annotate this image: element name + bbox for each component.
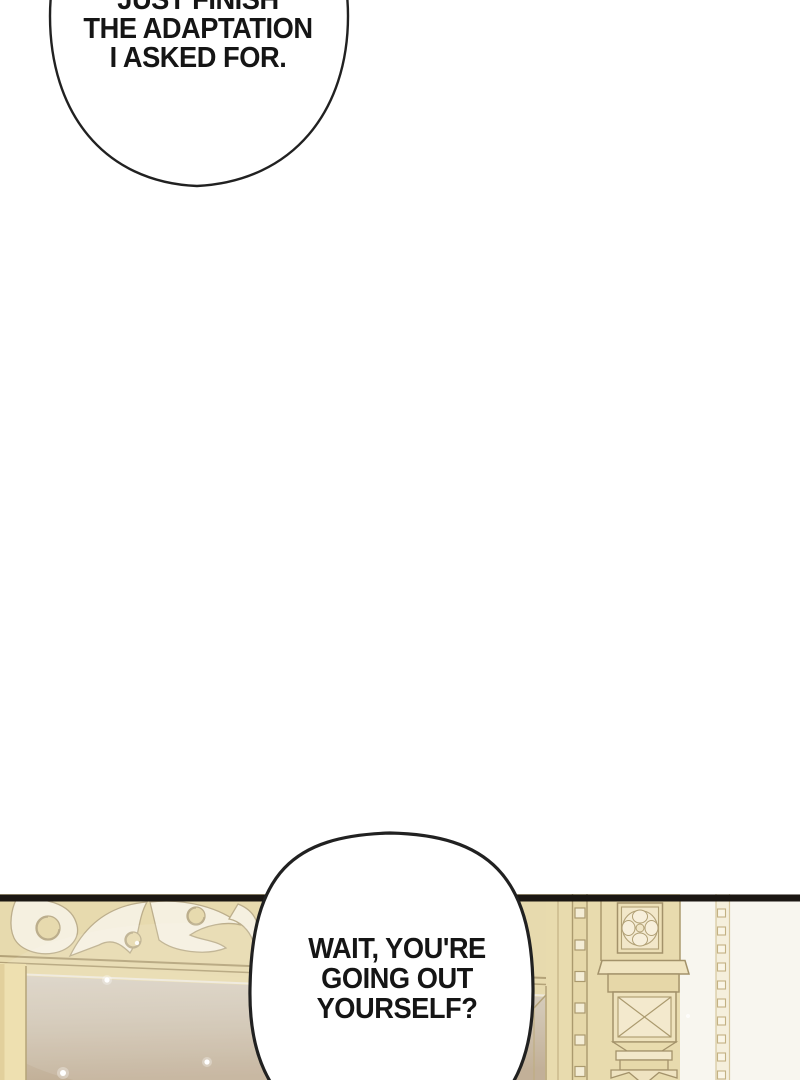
speech-text-bottom: WAIT, YOU'RE GOING OUT YOURSELF? — [251, 934, 542, 1024]
speech-line: I ASKED FOR. — [49, 44, 346, 73]
column-shelf — [598, 961, 689, 993]
white-wall — [680, 894, 800, 1080]
left-pilaster — [0, 963, 26, 1080]
dentil-strip — [573, 894, 588, 1080]
speech-line: WAIT, YOU'RE — [251, 934, 542, 964]
speech-text-top: JUST FINISH THE ADAPTATION I ASKED FOR. — [49, 0, 346, 73]
speech-line: YOURSELF? — [251, 994, 542, 1024]
speech-line: THE ADAPTATION — [49, 15, 346, 44]
comic-page: JUST FINISH THE ADAPTATION I ASKED FOR. … — [0, 0, 800, 1080]
corbel-bracket — [611, 992, 677, 1080]
quatrefoil-medallion — [618, 903, 663, 953]
speech-line: GOING OUT — [251, 964, 542, 994]
comic-artwork — [0, 0, 800, 1080]
bracket-strip — [716, 894, 730, 1080]
